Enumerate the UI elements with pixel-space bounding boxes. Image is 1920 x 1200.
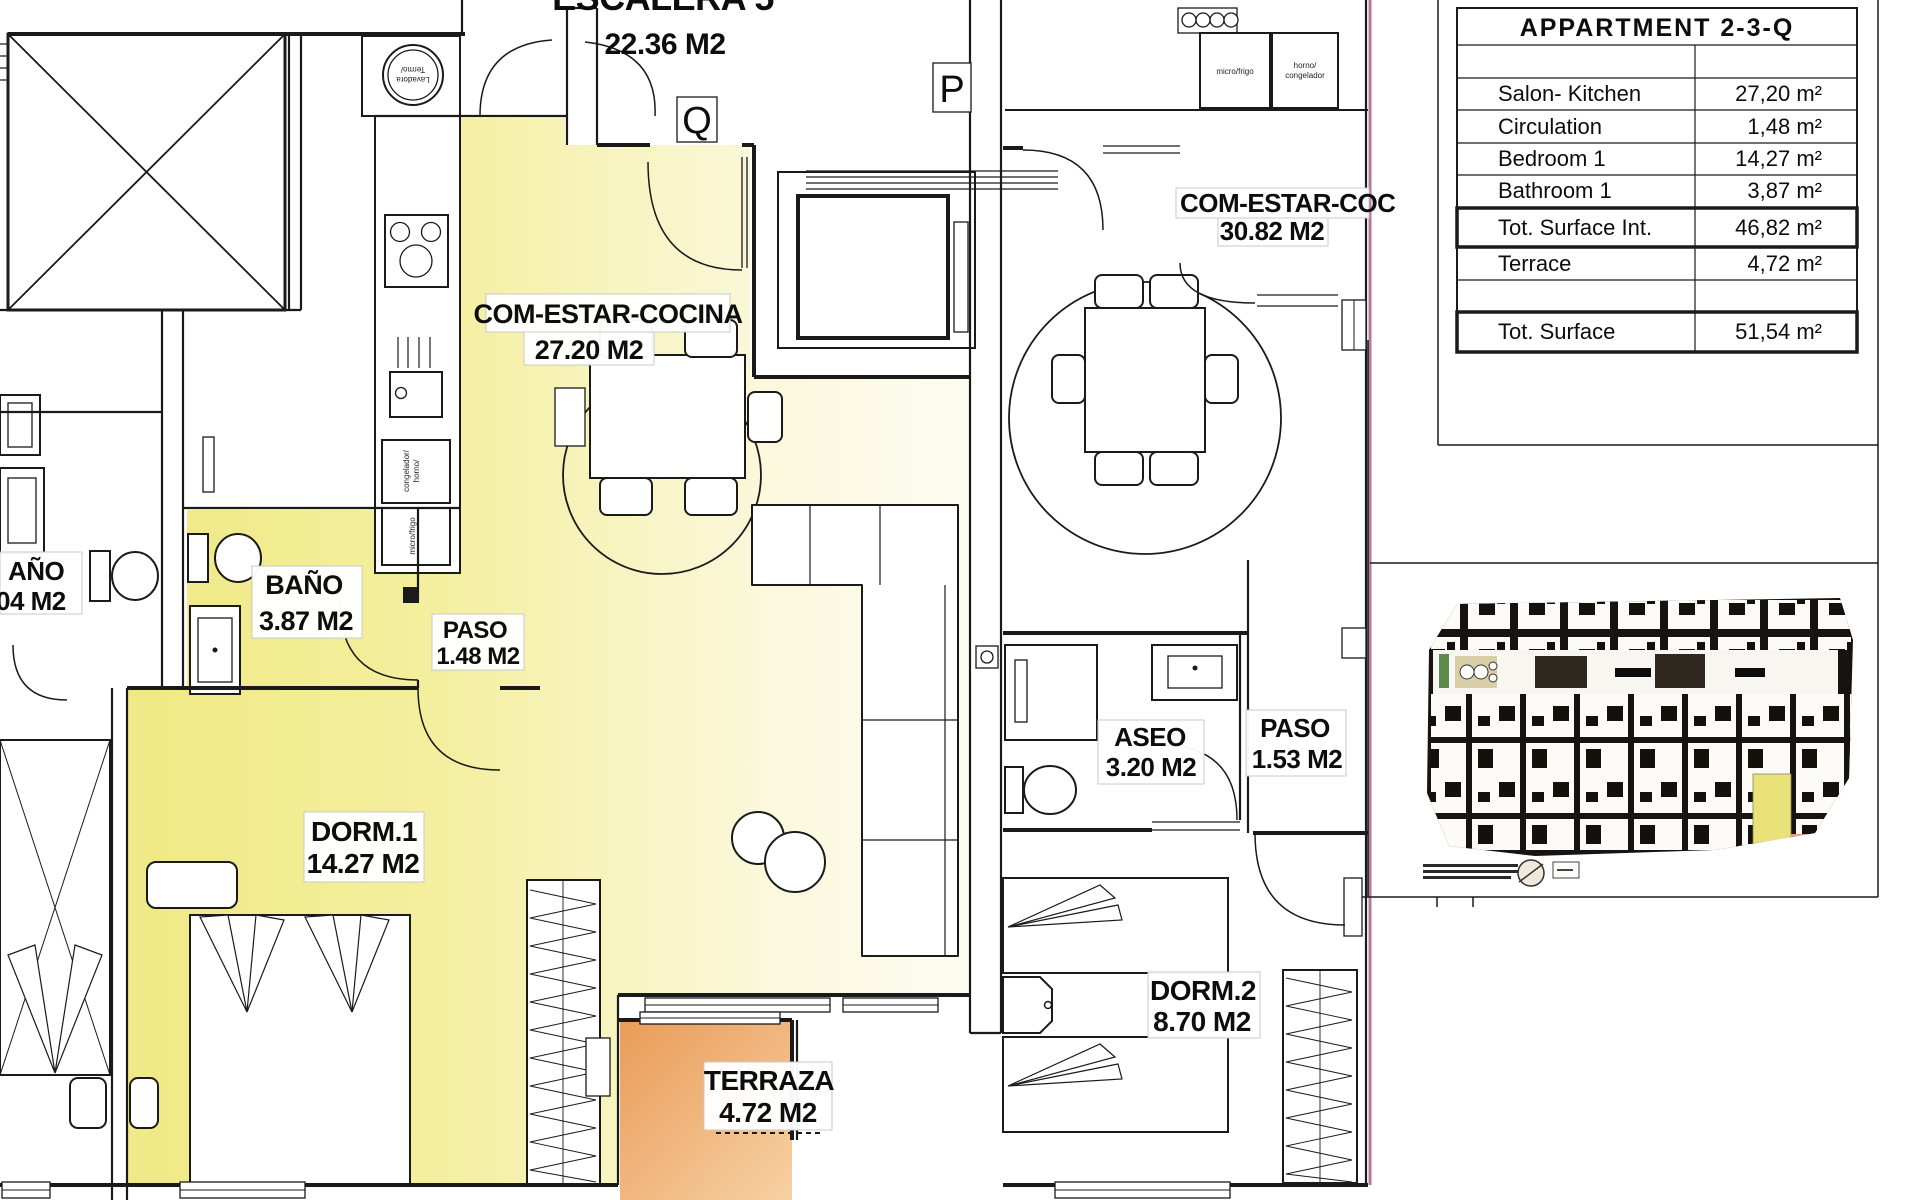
toilet-icon bbox=[188, 534, 261, 582]
svg-text:P: P bbox=[939, 69, 964, 111]
side-table bbox=[765, 832, 825, 892]
svg-text:ASEO: ASEO bbox=[1114, 722, 1186, 752]
stair-name: ESCALERA 5 bbox=[552, 0, 774, 18]
marker-q: Q bbox=[677, 97, 717, 142]
party-wall-symbol bbox=[976, 646, 998, 668]
svg-text:Circulation: Circulation bbox=[1498, 114, 1602, 139]
window bbox=[1344, 878, 1362, 936]
washer-label: Lavadora bbox=[396, 75, 430, 84]
window bbox=[1342, 628, 1366, 658]
toilet-icon bbox=[90, 551, 158, 601]
elevator bbox=[778, 171, 1058, 348]
micro-fridge-icon: micro/frigo bbox=[382, 508, 450, 565]
svg-text:Salon- Kitchen: Salon- Kitchen bbox=[1498, 81, 1641, 106]
svg-text:1.48 M2: 1.48 M2 bbox=[436, 643, 519, 670]
bed bbox=[190, 915, 410, 1185]
svg-text:4.72 M2: 4.72 M2 bbox=[719, 1097, 817, 1128]
wardrobe bbox=[527, 880, 610, 1185]
svg-text:1,48 m²: 1,48 m² bbox=[1747, 114, 1822, 139]
svg-text:14,27 m²: 14,27 m² bbox=[1735, 146, 1822, 171]
stair-area: 22.36 M2 bbox=[604, 28, 725, 61]
window bbox=[1055, 1182, 1230, 1198]
label-salon-p: COM-ESTAR-COC 30.82 M2 bbox=[1176, 188, 1396, 246]
label-bano: BAÑO 3.87 M2 bbox=[252, 566, 362, 638]
svg-text:horno/: horno/ bbox=[1294, 61, 1317, 70]
chair bbox=[1205, 355, 1238, 403]
svg-text:1.53 M2: 1.53 M2 bbox=[1252, 744, 1342, 774]
svg-text:51,54 m²: 51,54 m² bbox=[1735, 319, 1822, 344]
label-dorm2: DORM.2 8.70 M2 bbox=[1148, 972, 1260, 1038]
svg-text:COM-ESTAR-COCINA: COM-ESTAR-COCINA bbox=[474, 299, 743, 329]
dining-table bbox=[1085, 308, 1205, 452]
svg-text:Bathroom 1: Bathroom 1 bbox=[1498, 178, 1612, 203]
area-table: APPARTMENT 2-3-Q Salon- Kitchen27,20 m² … bbox=[1438, 0, 1878, 445]
svg-text:Bedroom 1: Bedroom 1 bbox=[1498, 146, 1606, 171]
kitchen-counter bbox=[375, 116, 460, 573]
window bbox=[1342, 300, 1366, 350]
vanity-sink bbox=[190, 606, 240, 694]
label-paso-q: PASO 1.48 M2 bbox=[432, 614, 524, 670]
nightstand bbox=[130, 1078, 158, 1128]
toilet-icon bbox=[1024, 766, 1076, 814]
svg-text:30.82 M2: 30.82 M2 bbox=[1220, 216, 1324, 246]
label-aseo: ASEO 3.20 M2 bbox=[1098, 720, 1204, 784]
svg-text:Termo/: Termo/ bbox=[400, 65, 425, 74]
nightstand bbox=[147, 862, 237, 908]
chair bbox=[1095, 275, 1143, 308]
door-hinge-block bbox=[403, 587, 419, 603]
svg-text:congelador/: congelador/ bbox=[402, 449, 411, 492]
label-dorm1: DORM.1 14.27 M2 bbox=[304, 812, 424, 882]
terrace-door bbox=[640, 1012, 780, 1024]
bed bbox=[0, 740, 110, 1075]
svg-text:14.27 M2: 14.27 M2 bbox=[307, 848, 420, 879]
svg-text:PASO: PASO bbox=[1260, 713, 1330, 743]
chair bbox=[1150, 452, 1198, 485]
shower-screen bbox=[203, 437, 214, 492]
svg-text:BAÑO: BAÑO bbox=[265, 569, 343, 600]
svg-text:8.70 M2: 8.70 M2 bbox=[1153, 1006, 1251, 1037]
window bbox=[843, 998, 938, 1012]
svg-text:3.87 M2: 3.87 M2 bbox=[259, 606, 353, 636]
label-bano-adjacent: AÑO 04 M2 bbox=[0, 552, 82, 616]
svg-text:Q: Q bbox=[682, 100, 712, 142]
chair bbox=[1150, 275, 1198, 308]
svg-text:DORM.1: DORM.1 bbox=[311, 816, 417, 847]
svg-text:congelador: congelador bbox=[1285, 71, 1325, 80]
svg-text:Terrace: Terrace bbox=[1498, 251, 1571, 276]
chair bbox=[600, 478, 652, 515]
chair bbox=[1052, 355, 1085, 403]
oven-freezer-icon: horno/ congelador bbox=[1272, 33, 1338, 108]
window bbox=[180, 1182, 305, 1198]
micro-fridge-icon: micro/frigo bbox=[1200, 33, 1270, 108]
svg-text:3,87 m²: 3,87 m² bbox=[1747, 178, 1822, 203]
svg-text:horno/: horno/ bbox=[412, 459, 421, 482]
svg-text:46,82 m²: 46,82 m² bbox=[1735, 215, 1822, 240]
svg-text:AÑO: AÑO bbox=[8, 556, 65, 586]
floorplan-sheet: Lavadora Termo/ congelador/ horno/ micro… bbox=[0, 0, 1920, 1200]
chair bbox=[685, 478, 737, 515]
svg-text:micro/frigo: micro/frigo bbox=[1216, 67, 1254, 76]
label-paso-p: PASO 1.53 M2 bbox=[1246, 710, 1346, 776]
hob-icon bbox=[1178, 8, 1238, 33]
site-plan-caption bbox=[1423, 860, 1579, 886]
nightstand bbox=[70, 1078, 106, 1128]
label-terraza: TERRAZA 4.72 M2 bbox=[704, 1062, 835, 1133]
svg-text:TERRAZA: TERRAZA bbox=[704, 1065, 835, 1096]
chair bbox=[1095, 452, 1143, 485]
column bbox=[555, 388, 585, 446]
stove-icon bbox=[385, 215, 448, 287]
chair bbox=[748, 392, 782, 442]
marker-p: P bbox=[933, 63, 971, 112]
freezer-oven-icon: congelador/ horno/ bbox=[382, 440, 450, 503]
svg-text:PASO: PASO bbox=[443, 617, 507, 644]
svg-text:4,72 m²: 4,72 m² bbox=[1747, 251, 1822, 276]
svg-text:04 M2: 04 M2 bbox=[0, 586, 66, 616]
svg-text:Tot. Surface Int.: Tot. Surface Int. bbox=[1498, 215, 1652, 240]
wardrobe bbox=[1283, 970, 1357, 1183]
svg-text:COM-ESTAR-COC: COM-ESTAR-COC bbox=[1180, 188, 1396, 218]
site-plan-inset bbox=[1423, 598, 1853, 886]
svg-text:Tot. Surface: Tot. Surface bbox=[1498, 319, 1615, 344]
svg-text:3.20 M2: 3.20 M2 bbox=[1106, 752, 1196, 782]
svg-text:27,20 m²: 27,20 m² bbox=[1735, 81, 1822, 106]
svg-text:micro/frigo: micro/frigo bbox=[408, 517, 417, 555]
window bbox=[2, 1182, 50, 1198]
dining-table bbox=[590, 355, 745, 478]
table-title: APPARTMENT 2-3-Q bbox=[1520, 14, 1795, 42]
highlighted-unit bbox=[1753, 774, 1791, 846]
window bbox=[645, 998, 830, 1012]
svg-text:DORM.2: DORM.2 bbox=[1150, 975, 1256, 1006]
svg-text:27.20 M2: 27.20 M2 bbox=[535, 335, 644, 365]
